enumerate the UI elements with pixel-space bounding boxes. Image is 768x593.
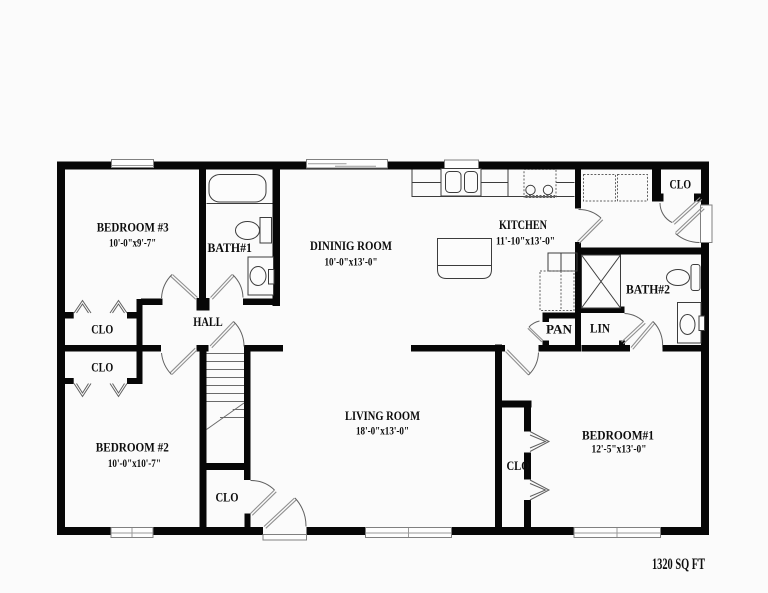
svg-text:CLO: CLO — [91, 323, 113, 337]
svg-text:18'-0"x13'-0": 18'-0"x13'-0" — [356, 424, 409, 438]
svg-text:10'-0"x9'-7": 10'-0"x9'-7" — [109, 236, 156, 250]
svg-text:KITCHEN: KITCHEN — [499, 217, 547, 232]
svg-text:BATH#2: BATH#2 — [626, 283, 670, 297]
svg-text:11'-10"x13'-0": 11'-10"x13'-0" — [496, 234, 555, 248]
svg-text:CLO: CLO — [216, 491, 239, 505]
svg-text:BATH#1: BATH#1 — [207, 241, 252, 255]
svg-text:CLO: CLO — [91, 361, 113, 375]
svg-text:HALL: HALL — [193, 314, 223, 329]
svg-text:CLO: CLO — [507, 459, 530, 473]
svg-text:LIVING ROOM: LIVING ROOM — [345, 408, 420, 423]
svg-text:CLO: CLO — [670, 178, 692, 192]
svg-text:BEDROOM #3: BEDROOM #3 — [97, 220, 169, 235]
svg-text:LIN: LIN — [590, 322, 610, 336]
svg-text:BEDROOM #2: BEDROOM #2 — [96, 440, 169, 455]
svg-text:PAN: PAN — [546, 323, 572, 337]
svg-text:DININIG ROOM: DININIG ROOM — [310, 238, 392, 253]
svg-text:10'-0"x10'-7": 10'-0"x10'-7" — [108, 456, 161, 470]
svg-text:BEDROOM#1: BEDROOM#1 — [582, 428, 654, 443]
svg-text:10'-0"x13'-0": 10'-0"x13'-0" — [325, 255, 378, 269]
svg-text:1320 SQ FT: 1320 SQ FT — [652, 556, 705, 573]
svg-text:12'-5"x13'-0": 12'-5"x13'-0" — [592, 442, 647, 456]
